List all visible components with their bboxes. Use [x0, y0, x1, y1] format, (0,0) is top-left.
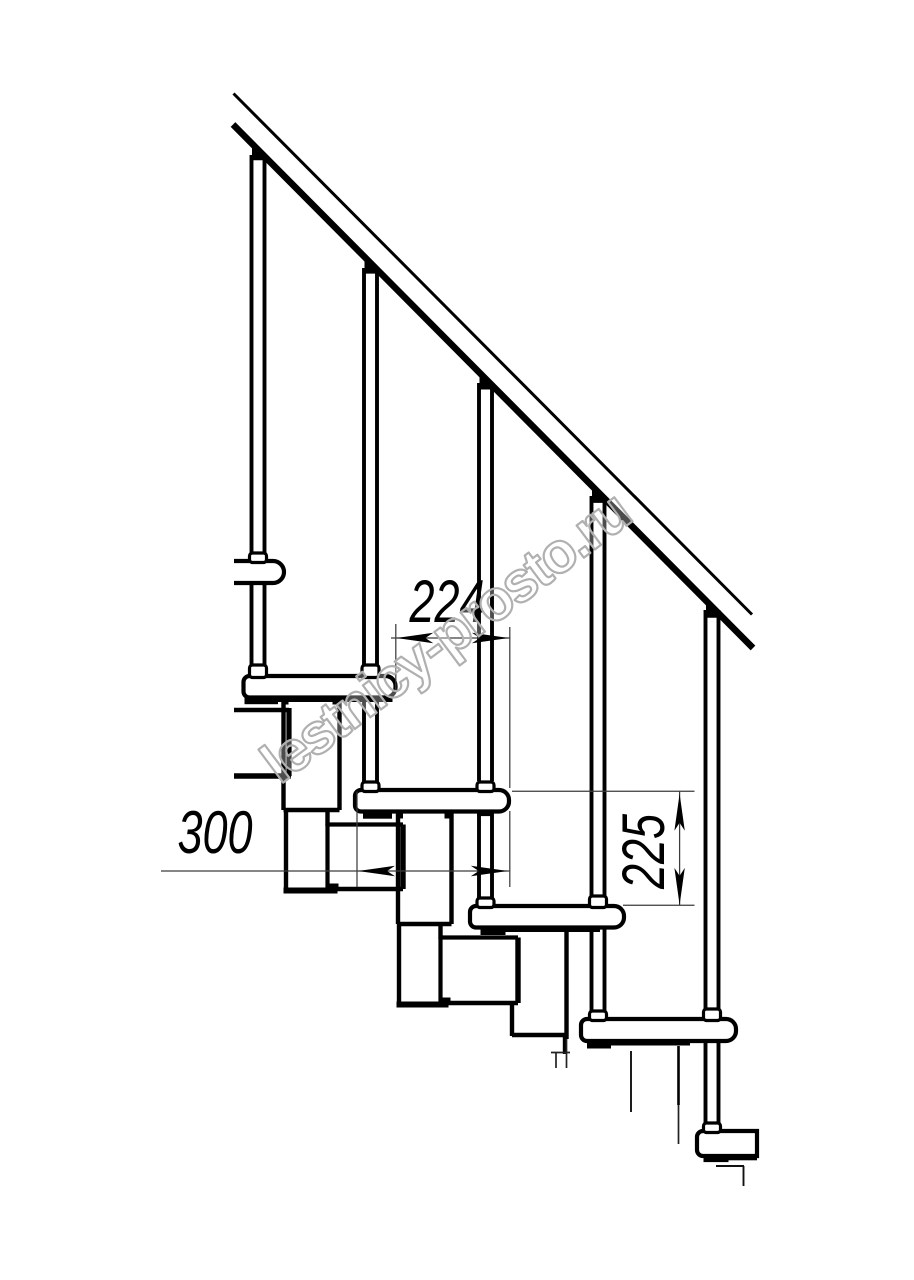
svg-text:225: 225 — [611, 814, 678, 890]
svg-text:300: 300 — [177, 800, 252, 867]
